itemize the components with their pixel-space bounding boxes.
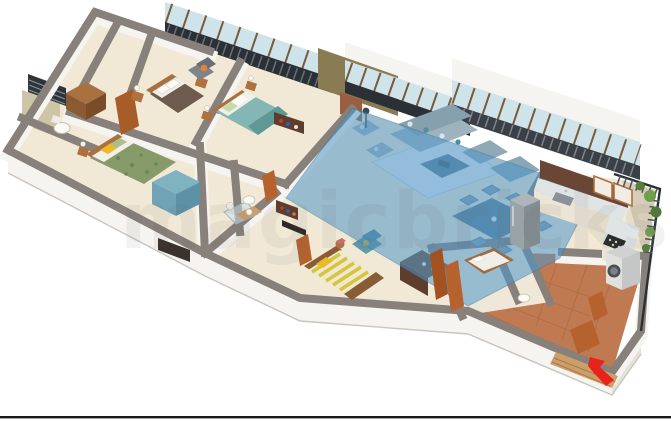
storage-item-white bbox=[294, 125, 298, 129]
lamp-3 bbox=[81, 142, 86, 147]
lamp-2b bbox=[249, 76, 254, 81]
lamp-2a bbox=[205, 106, 210, 111]
toilet-1 bbox=[54, 123, 70, 134]
washer-door-inner bbox=[610, 267, 618, 275]
floor-plan-svg: magicbricks bbox=[0, 0, 671, 422]
storage-item-red bbox=[279, 119, 283, 123]
lamp-1a bbox=[134, 85, 139, 90]
bottom-border-line bbox=[0, 416, 671, 418]
watermark-text: magicbricks bbox=[120, 177, 670, 267]
orange-cushion bbox=[201, 65, 208, 72]
floor-plan-canvas: magicbricks bbox=[0, 0, 671, 422]
storage-item-blue bbox=[286, 122, 290, 126]
toilet-3 bbox=[518, 294, 530, 302]
